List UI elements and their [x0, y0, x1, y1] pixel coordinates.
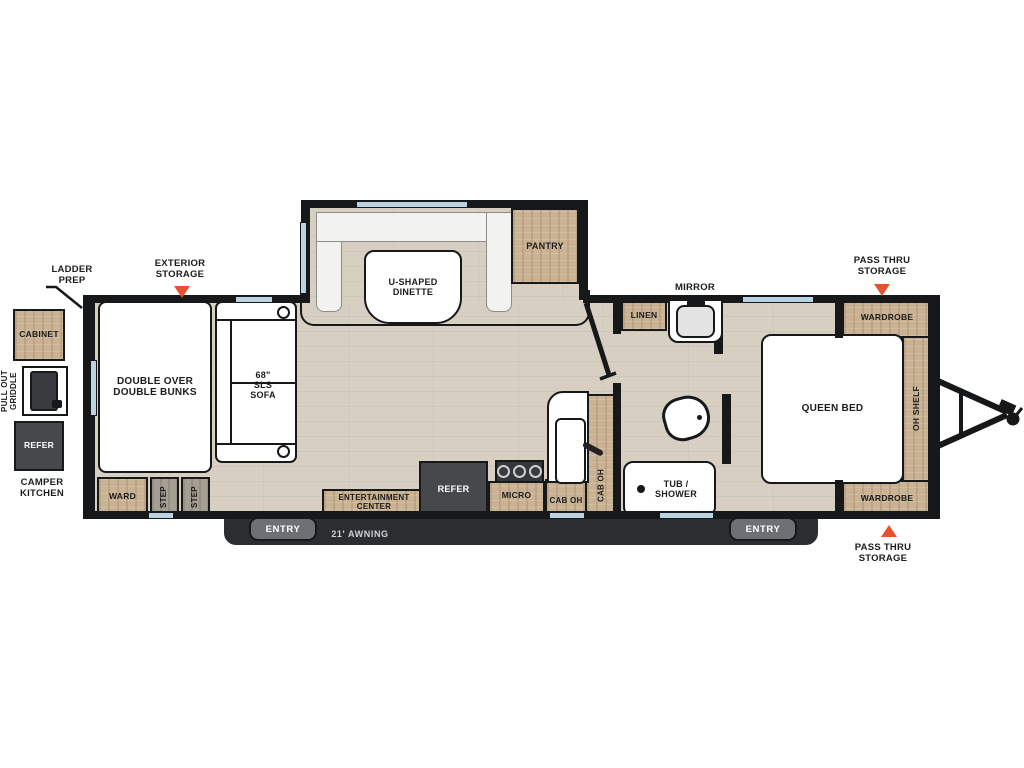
- oh-shelf-label: OH SHELF: [906, 336, 928, 482]
- entry-door-left: ENTRY: [249, 517, 317, 541]
- mirror-label: MIRROR: [666, 282, 724, 295]
- cab-oh-vert-label: CAB OH: [593, 458, 611, 512]
- camper-kitchen-label: CAMPER KITCHEN: [4, 476, 80, 502]
- window-slide-top: [356, 201, 468, 208]
- burner-icon: [513, 465, 526, 478]
- dinette-bench-right: [486, 212, 512, 312]
- cab-oh-label: CAB OH: [545, 490, 587, 512]
- hitch-coupler-icon: [997, 399, 1016, 416]
- hitch-frame-icon: [938, 415, 1007, 446]
- entry-left-label: ENTRY: [266, 524, 301, 535]
- sofa-label: 68" SLS SOFA: [228, 340, 298, 430]
- tub-shower-label: TUB / SHOWER: [640, 463, 712, 515]
- kitchen-sink: [555, 418, 586, 484]
- pass-thru-top-marker-icon: [874, 284, 890, 296]
- hitch-frame-icon: [938, 381, 1007, 412]
- step-1-label: STEP: [150, 477, 179, 517]
- dinette-bench-top: [316, 212, 512, 242]
- exterior-storage-label: EXTERIOR STORAGE: [146, 257, 214, 283]
- entertainment-center-label: ENTERTAINMENT CENTER: [322, 489, 426, 517]
- bath-wall-bedroom: [722, 394, 731, 464]
- linen-label: LINEN: [621, 301, 667, 331]
- micro-label: MICRO: [488, 481, 545, 511]
- pass-thru-bottom-label: PASS THRU STORAGE: [840, 540, 926, 568]
- hitch-jack-icon: [1007, 413, 1020, 426]
- wardrobe-top-label: WARDROBE: [842, 298, 932, 338]
- ward-label: WARD: [97, 477, 148, 517]
- pantry-label: PANTRY: [511, 208, 579, 284]
- bath-sink-faucet-icon: [687, 300, 705, 307]
- entry-right-label: ENTRY: [746, 524, 781, 535]
- step-2-label: STEP: [181, 477, 210, 517]
- exterior-storage-marker-icon: [174, 286, 190, 298]
- hitch-jack-handle-icon: [1013, 408, 1022, 419]
- ladder-prep-label: LADDER PREP: [42, 263, 102, 289]
- camper-kitchen-cabinet-label: CABINET: [13, 309, 65, 361]
- kitchen-refer-label: REFER: [419, 461, 488, 518]
- floorplan-canvas: CABINET PULL OUT GRIDDLE REFER CAMPER KI…: [0, 0, 1024, 768]
- window-top-left: [235, 296, 273, 303]
- slide-wall-right: [579, 200, 588, 300]
- burner-icon: [529, 465, 542, 478]
- window-bedroom-top: [742, 296, 814, 303]
- window-slide-left: [300, 222, 307, 294]
- window-bottom-kitchen: [549, 512, 585, 519]
- wardrobe-bottom-label: WARDROBE: [842, 480, 932, 518]
- ladder-prep-pointer-icon: [46, 287, 82, 308]
- camper-kitchen-refer-label: REFER: [14, 421, 64, 471]
- window-left-wall: [90, 360, 97, 416]
- pass-thru-top-label: PASS THRU STORAGE: [842, 254, 922, 280]
- griddle-handle-icon: [52, 400, 62, 408]
- wall-bottom: [83, 511, 940, 519]
- cupholder-icon: [277, 445, 290, 458]
- bath-sink-basin-icon: [676, 305, 715, 338]
- pullout-griddle-label: PULL OUT GRIDDLE: [0, 360, 20, 422]
- dinette-label: U-SHAPED DINETTE: [364, 252, 462, 322]
- bath-wall-kitchen: [613, 383, 621, 513]
- queen-bed-label: QUEEN BED: [761, 334, 904, 484]
- entry-door-right: ENTRY: [729, 517, 797, 541]
- double-bunks-label: DOUBLE OVER DOUBLE BUNKS: [98, 301, 212, 473]
- bath-wall-linen-left: [613, 298, 621, 334]
- toilet-flush-icon: [697, 415, 702, 420]
- burner-icon: [497, 465, 510, 478]
- awning-label: 21' AWNING: [318, 527, 402, 541]
- cupholder-icon: [277, 306, 290, 319]
- cooktop: [495, 460, 544, 483]
- pass-thru-bottom-marker-icon: [881, 525, 897, 537]
